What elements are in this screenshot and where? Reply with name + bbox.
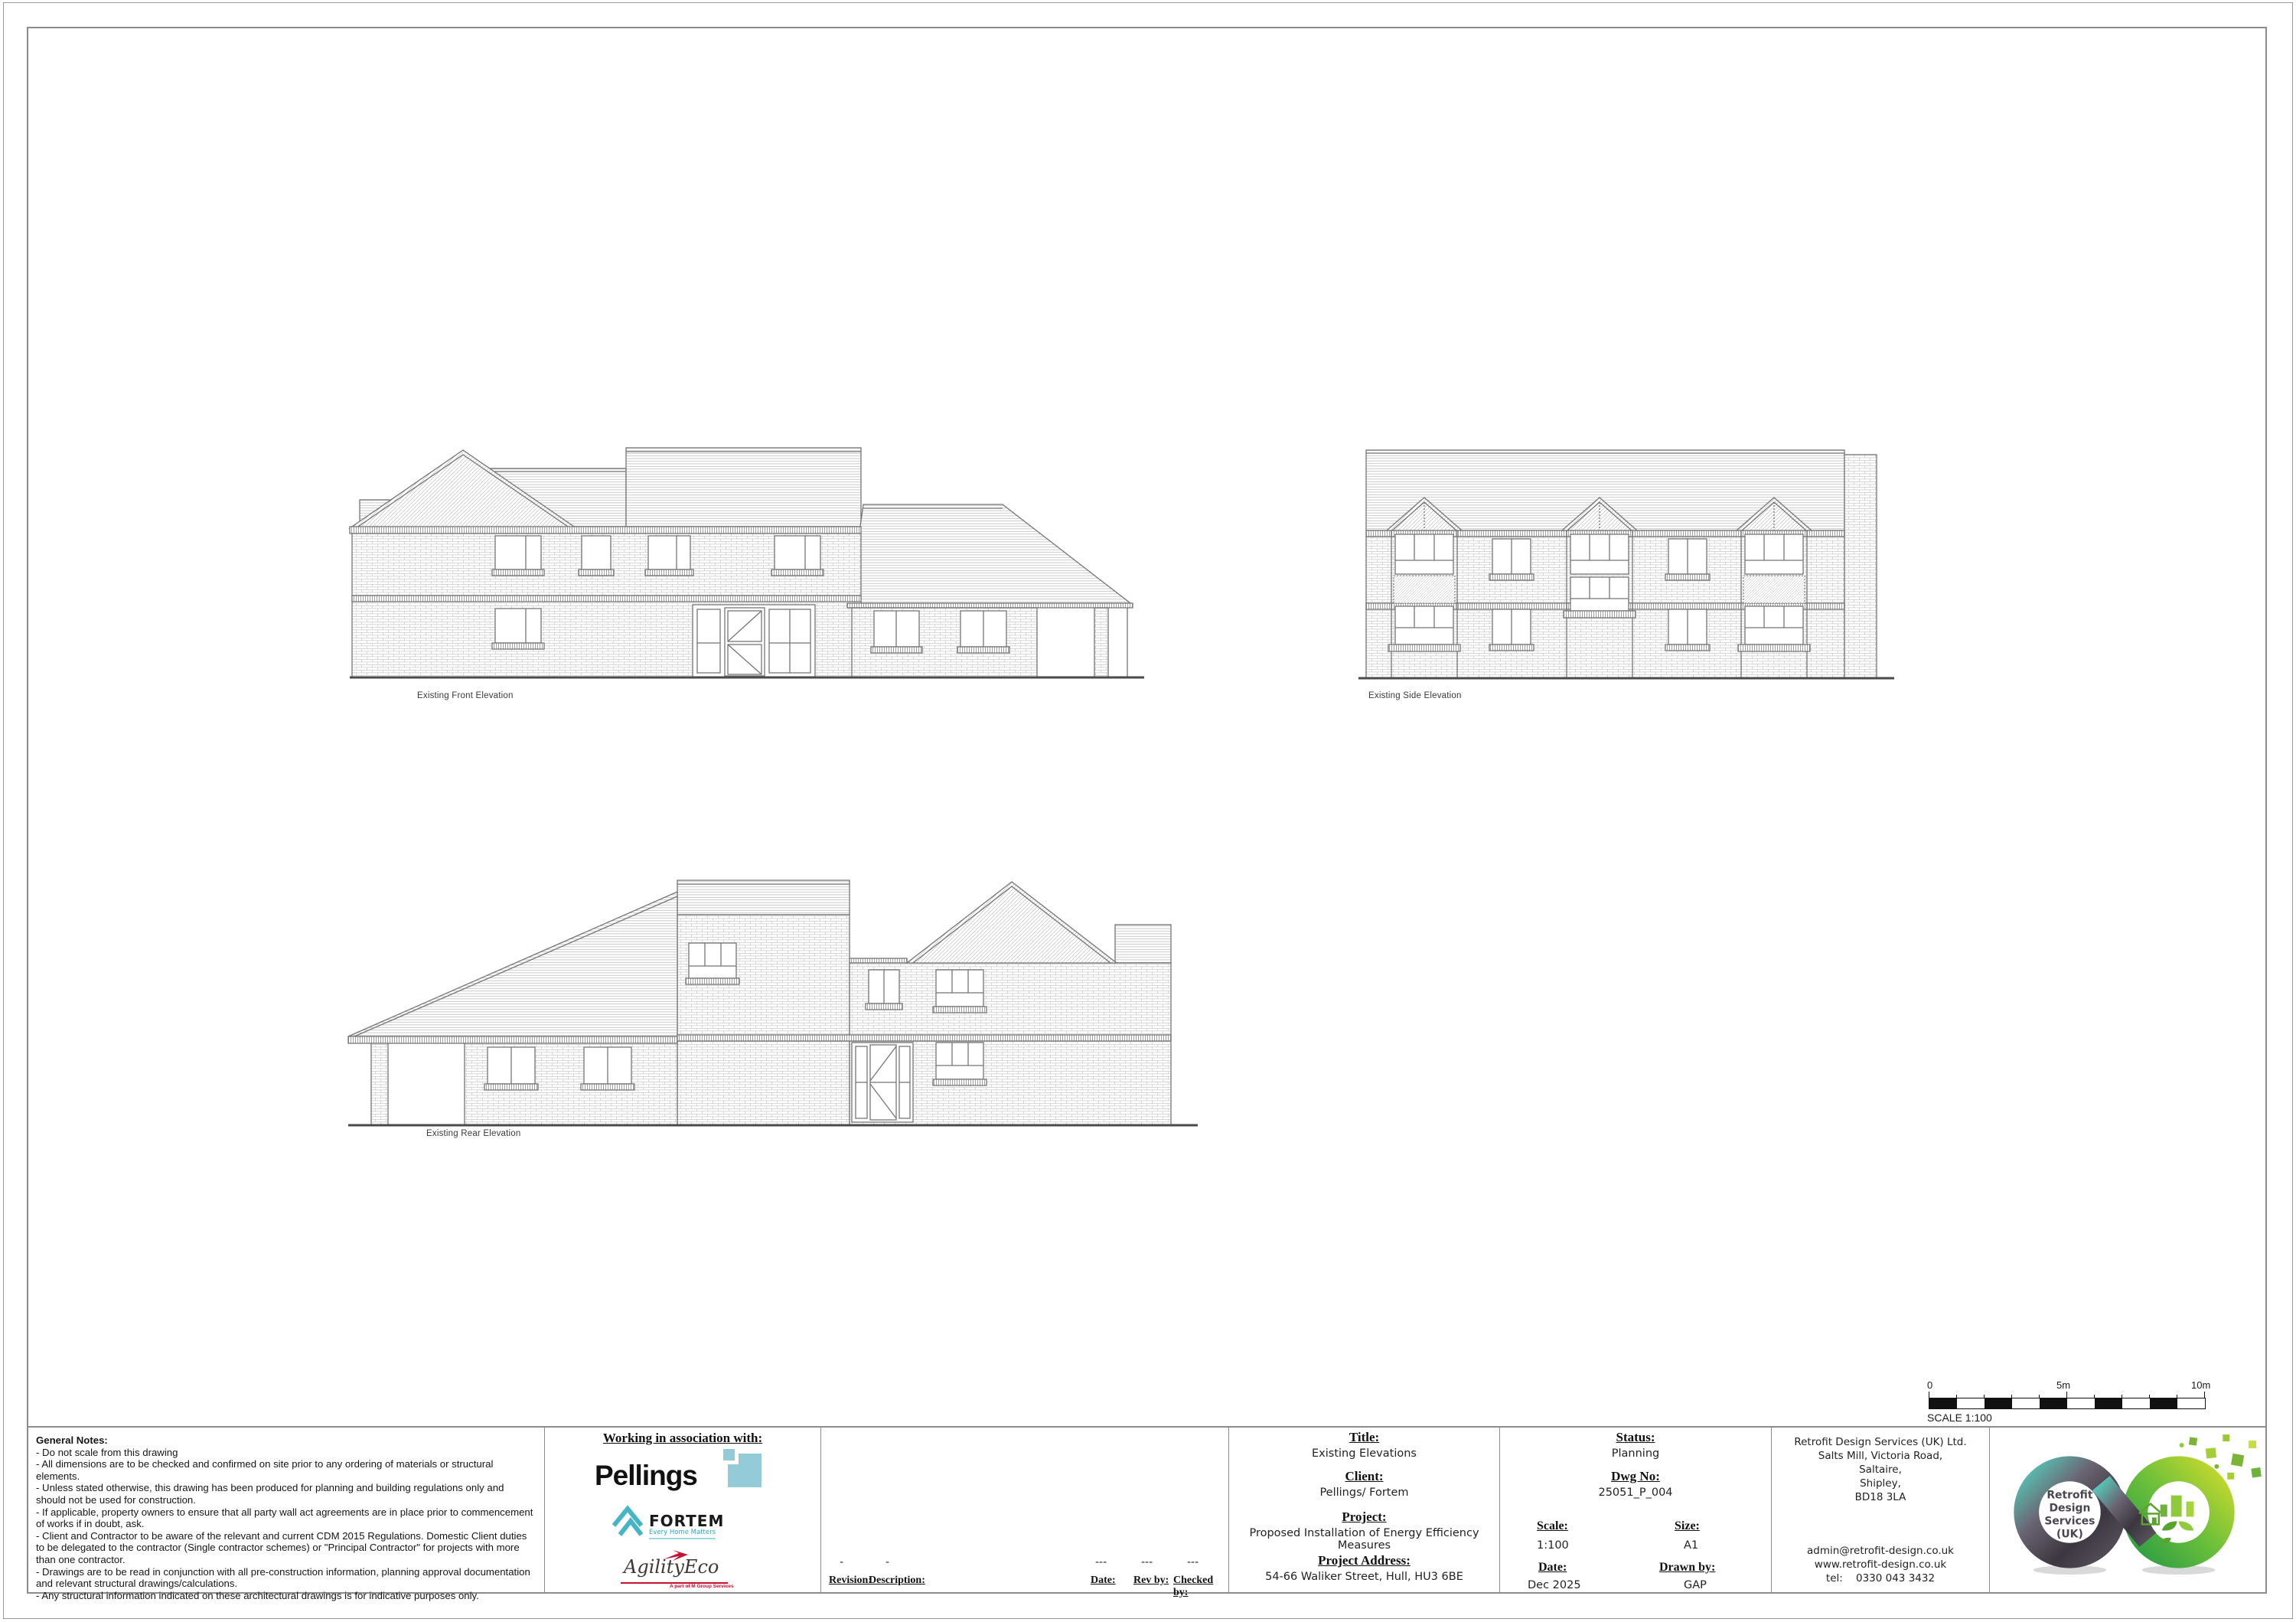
general-notes-heading: General Notes: [36,1434,535,1447]
date-label: Date: [1538,1561,1567,1575]
company-email: admin@retrofit-design.co.uk [1772,1544,1989,1558]
side-elevation-drawing [1358,444,1902,697]
drawn-by-label: Drawn by: [1659,1561,1715,1575]
company-address-line: Saltaire, [1772,1463,1989,1477]
rear-elevation-label: Existing Rear Elevation [426,1129,521,1138]
rear-string-course [677,1035,1171,1041]
note-line: - If applicable, property owners to ensu… [36,1506,535,1530]
dwg-no-value: 25051_P_004 [1500,1487,1771,1499]
company-name: Retrofit Design Services (UK) Ltd. [1772,1435,1989,1449]
rear-gable [907,882,1117,963]
svg-text:(UK): (UK) [2056,1528,2083,1540]
front-eaves-band [350,527,861,534]
front-right-eaves [847,603,1133,608]
note-line: - All dimensions are to be checked and c… [36,1458,535,1482]
agilityeco-logo-text: AgilityEco [624,1556,719,1578]
size-value: A1 [1684,1539,1698,1552]
front-elevation-label: Existing Front Elevation [417,691,514,700]
scale-bar-strip [1929,1398,2206,1409]
rev-by-value: --- [1141,1556,1153,1568]
note-line: - Any structural information indicated o… [36,1590,535,1602]
fortem-logo-text: FORTEM [649,1512,724,1530]
rear-center-window [686,943,739,984]
general-notes: General Notes: - Do not scale from this … [27,1428,545,1594]
company-address-line: Shipley, [1772,1477,1989,1490]
company-address-line: Salts Mill, Victoria Road, [1772,1449,1989,1463]
client-label: Client: [1229,1469,1499,1484]
rev-date-label: Date: [1091,1575,1116,1587]
company-tel: tel: 0330 043 3432 [1772,1571,1989,1585]
logo-column: Retrofit Design Services (UK) [1990,1428,2267,1594]
title-label: Title: [1229,1430,1499,1445]
scale-label: Scale: [1537,1519,1568,1533]
rear-door [852,1043,913,1122]
scale-bar: 0 5m 10m SCALE 1:100 [1925,1378,2246,1428]
front-string-course [352,596,861,602]
title-value: Existing Elevations [1229,1447,1499,1460]
scale-bar-ten: 10m [2191,1379,2210,1391]
front-elevation-drawing [348,429,1190,704]
rev-date-value: --- [1095,1556,1107,1568]
front-ground-window [492,609,544,649]
project-value: Proposed Installation of Energy Efficien… [1229,1527,1499,1552]
title-column: Title: Existing Elevations Client: Pelli… [1229,1428,1500,1594]
company-address-line: BD18 3LA [1772,1490,1989,1504]
status-label: Status: [1500,1430,1771,1445]
drawn-by-value: GAP [1684,1579,1707,1591]
rear-left-eaves [348,1036,677,1043]
note-line: - Client and Contractor to be aware of t… [36,1530,535,1566]
project-address-value: 54-66 Waliker Street, Hull, HU3 6BE [1229,1571,1499,1583]
fortem-logo-icon [608,1500,647,1539]
status-value: Planning [1500,1447,1771,1460]
revision-column: - - --- --- --- Revision: Description: D… [821,1428,1229,1594]
revision-label: Revision: [829,1575,872,1587]
note-line: - Do not scale from this drawing [36,1447,535,1459]
front-right-wing-roof [850,504,1130,603]
scale-bar-five: 5m [2056,1379,2070,1391]
client-value: Pellings/ Fortem [1229,1487,1499,1499]
association-column: Working in association with: Pellings FO… [545,1428,821,1594]
drawing-sheet: Existing Front Elevation [0,0,2296,1622]
pellings-logo-text: Pellings [595,1460,697,1492]
svg-text:Retrofit: Retrofit [2047,1490,2093,1502]
company-website: www.retrofit-design.co.uk [1772,1558,1989,1571]
scale-value: 1:100 [1537,1539,1569,1552]
side-bay-right [1737,498,1812,678]
agilityeco-tagline: A part of M Group Services [670,1584,734,1589]
rear-right-roof [1115,925,1171,963]
side-elevation-label: Existing Side Elevation [1368,691,1462,700]
status-column: Status: Planning Dwg No: 25051_P_004 Sca… [1500,1428,1772,1594]
rear-elevation-drawing [341,873,1205,1148]
pellings-logo: Pellings [587,1449,778,1496]
size-label: Size: [1675,1519,1700,1533]
dwg-no-label: Dwg No: [1500,1469,1771,1484]
description-value: - [885,1556,889,1568]
rear-left-roof [348,892,677,1036]
association-heading: Working in association with: [603,1431,762,1446]
company-column: Retrofit Design Services (UK) Ltd. Salts… [1772,1428,1990,1594]
front-entrance-door [693,605,815,677]
project-label: Project: [1229,1509,1499,1525]
rev-by-label: Rev by: [1133,1575,1169,1587]
project-address-label: Project Address: [1229,1553,1499,1568]
note-line: - Drawings are to be read in conjunction… [36,1566,535,1590]
svg-text:Design: Design [2049,1502,2090,1514]
agilityeco-logo: AgilityEco A part of M Group Services [610,1549,755,1588]
scale-bar-zero: 0 [1927,1379,1932,1391]
retrofit-logo: Retrofit Design Services (UK) [1990,1428,2264,1593]
checked-by-value: --- [1187,1556,1199,1568]
date-value: Dec 2025 [1528,1579,1581,1591]
side-bay-left [1387,498,1462,678]
side-return-wall [1844,455,1877,678]
note-line: - Unless stated otherwise, this drawing … [36,1482,535,1506]
front-carport-pier [1094,608,1108,677]
description-label: Description: [869,1575,925,1587]
checked-by-label: Checked by: [1173,1575,1228,1599]
svg-text:Services: Services [2044,1515,2095,1527]
fortem-logo: FORTEM Every Home Matters [606,1500,759,1542]
fortem-tagline: Every Home Matters [649,1529,716,1539]
scale-bar-caption: SCALE 1:100 [1927,1411,1992,1424]
rear-carport-post [371,1043,388,1125]
pellings-logo-icon [723,1449,766,1487]
revision-value: - [840,1556,843,1568]
drawing-frame [27,27,2267,1594]
rear-center-roof [677,880,850,915]
front-center-raised-roof [626,448,861,527]
title-block: General Notes: - Do not scale from this … [27,1426,2267,1594]
